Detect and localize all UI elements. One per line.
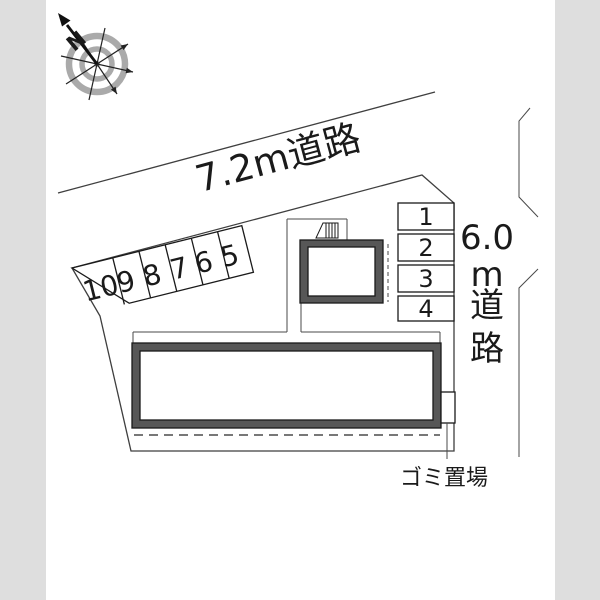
parking-space-1-label: 1 [418,203,433,231]
right-road-label-line4: 路 [470,329,504,369]
garbage-area-label: ゴミ置場 [400,466,488,491]
annex-building [300,240,383,303]
garbage-area-box [441,392,455,423]
main-building [132,343,441,428]
parking-space-3-label: 3 [418,265,433,293]
right-margin-strip [555,0,600,600]
right-road-label-line3: 道 [470,286,504,326]
site-plan-canvas: 7.2m道路 6.0 m 道 路 10 9 8 7 6 5 [0,0,600,600]
main-building-interior [140,351,433,420]
site-plan-drawing: 7.2m道路 6.0 m 道 路 10 9 8 7 6 5 [0,0,600,600]
parking-space-4-label: 4 [418,295,433,323]
annex-building-interior [308,247,375,296]
left-margin-strip [0,0,46,600]
parking-space-2-label: 2 [418,234,433,262]
right-road-label-line1: 6.0 [460,218,514,258]
